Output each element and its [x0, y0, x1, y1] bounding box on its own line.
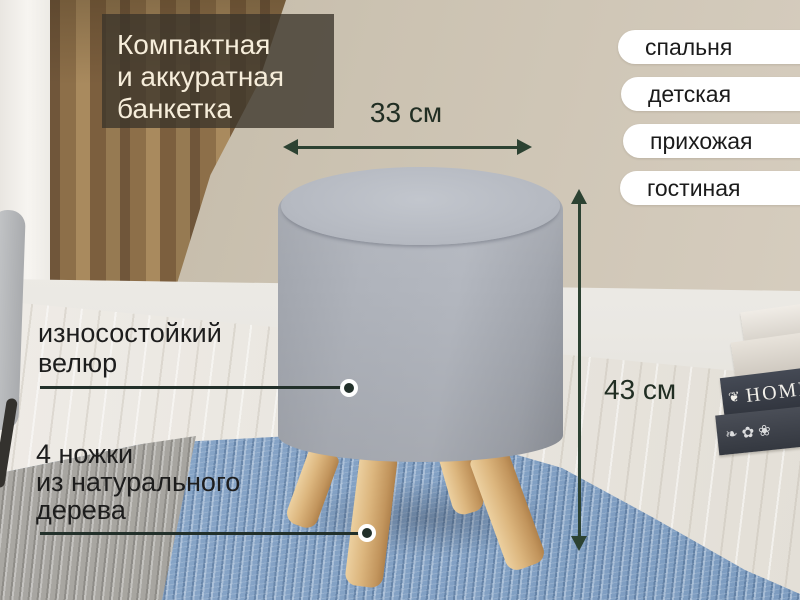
title-overlay: Компактная и аккуратная банкетка	[102, 14, 334, 128]
legs-callout-line-1: 4 ножки	[36, 440, 240, 468]
book-home-title: HOME	[745, 377, 800, 408]
legs-callout-leader	[40, 532, 359, 535]
legs-callout-line-3: дерева	[36, 496, 240, 524]
fleuron-icon: ❦	[727, 388, 741, 406]
room-tag-bedroom: спальня	[618, 30, 800, 64]
velour-callout-dot-icon	[340, 379, 358, 397]
arrowhead-left-icon	[283, 139, 298, 155]
title-line-2: и аккуратная	[117, 61, 334, 93]
title-line-3: банкетка	[117, 93, 334, 125]
arrowhead-down-icon	[571, 536, 587, 551]
title-line-1: Компактная	[117, 29, 334, 61]
arrowhead-up-icon	[571, 189, 587, 204]
legs-callout-text: 4 ножки из натурального дерева	[36, 440, 240, 524]
velour-callout-leader	[40, 386, 341, 389]
arrowhead-right-icon	[517, 139, 532, 155]
width-dimension-label: 33 см	[360, 97, 452, 129]
height-dimension-label: 43 см	[604, 374, 676, 406]
velour-callout-line-2: велюр	[38, 348, 222, 378]
width-arrow	[296, 146, 519, 149]
room-tag-livingroom: гостиная	[620, 171, 800, 205]
legs-callout-line-2: из натурального	[36, 468, 240, 496]
ottoman-top-surface	[281, 167, 560, 245]
legs-callout-dot-icon	[358, 524, 376, 542]
velour-callout-line-1: износостойкий	[38, 318, 222, 348]
height-arrow	[578, 203, 581, 537]
room-tag-kids: детская	[621, 77, 800, 111]
product-infographic: ❦ HOME ❧✿❀ Компактная и аккуратная банке…	[0, 0, 800, 600]
velour-callout-text: износостойкий велюр	[38, 318, 222, 378]
room-tag-hallway: прихожая	[623, 124, 800, 158]
floral-pattern-icon: ❧✿❀	[724, 421, 775, 444]
